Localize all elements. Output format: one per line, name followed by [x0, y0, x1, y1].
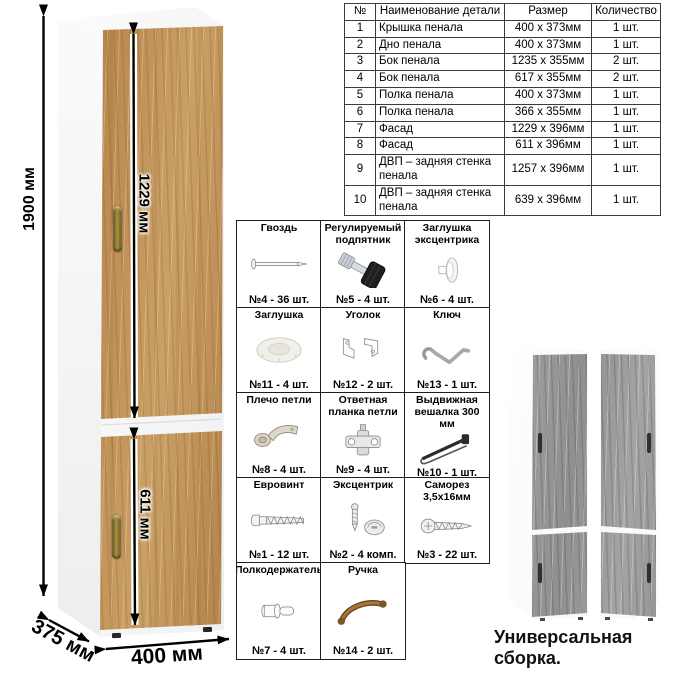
table-row: 10 ДВП – задняя стенка пенала 639 x 396м…: [345, 185, 661, 216]
preview-handle: [647, 433, 651, 453]
hardware-item-title: Гвоздь: [261, 223, 298, 235]
part-size: 1229 x 396мм: [505, 121, 592, 138]
preview-foot: [648, 618, 653, 621]
part-number: 7: [345, 121, 376, 138]
part-size: 400 x 373мм: [505, 20, 592, 37]
hardware-item-nail: Гвоздь №4 - 36 шт.: [236, 220, 321, 308]
hardware-item-shelf-pin: Полкодержатель №7 - 4 шт.: [236, 562, 321, 659]
upper-door-handle: [113, 206, 122, 252]
pullout-hanger-icon: [406, 431, 487, 467]
hinge-arm-icon: [238, 407, 319, 464]
hardware-grid: Гвоздь №4 - 36 шт. Регулируемый подпятни…: [237, 221, 489, 659]
part-number: 5: [345, 87, 376, 104]
col-header-number: №: [345, 4, 376, 21]
hardware-item-count: №4 - 36 шт.: [249, 294, 309, 306]
hardware-item-title: Ответная планка петли: [322, 395, 403, 419]
cam-cap-icon: [406, 247, 487, 294]
part-size: 400 x 373мм: [505, 37, 592, 54]
table-row: 5 Полка пенала 400 x 373мм 1 шт.: [345, 87, 661, 104]
hardware-item-count: №11 - 4 шт.: [249, 379, 309, 391]
hex-key-icon: [406, 322, 487, 379]
part-name: ДВП – задняя стенка пенала: [376, 185, 505, 216]
part-number: 9: [345, 155, 376, 186]
part-qty: 2 шт.: [592, 71, 661, 88]
hardware-item-count: №9 - 4 шт.: [336, 464, 390, 476]
hardware-item-title: Уголок: [346, 310, 381, 322]
part-size: 1257 x 396мм: [505, 155, 592, 186]
hardware-item-cam-lock: Эксцентрик №2 - 4 комп.: [320, 477, 405, 563]
hardware-item-handle: Ручка №14 - 2 шт.: [320, 562, 405, 659]
col-header-size: Размер: [505, 4, 592, 21]
part-size: 1235 x 355мм: [505, 54, 592, 71]
part-name: Полка пенала: [376, 87, 505, 104]
col-header-quantity: Количество: [592, 4, 661, 21]
part-qty: 2 шт.: [592, 54, 661, 71]
part-qty: 1 шт.: [592, 87, 661, 104]
part-qty: 1 шт.: [592, 104, 661, 121]
table-row: 1 Крышка пенала 400 x 373мм 1 шт.: [345, 20, 661, 37]
hardware-item-pullout-hanger: Выдвижная вешалка 300 мм №10 - 1 шт.: [404, 392, 489, 478]
hardware-item-count: №1 - 12 шт.: [249, 549, 309, 561]
hardware-item-hinge-plate: Ответная планка петли №9 - 4 шт.: [320, 392, 405, 478]
part-name: Крышка пенала: [376, 20, 505, 37]
confirmat-screw-icon: [238, 492, 319, 549]
hardware-item-count: №14 - 2 шт.: [333, 645, 393, 657]
lower-door-dimension-label: 611 мм: [137, 470, 154, 560]
part-qty: 1 шт.: [592, 121, 661, 138]
table-row: 2 Дно пенала 400 x 373мм 1 шт.: [345, 37, 661, 54]
hardware-item-adjustable-foot: Регулируемый подпятник №5 - 4 шт.: [320, 220, 405, 308]
hardware-item-title: Ручка: [348, 565, 378, 577]
cabinet-foot: [112, 633, 121, 638]
hardware-item-count: №13 - 1 шт.: [417, 379, 477, 391]
nail-icon: [238, 235, 319, 294]
hinge-plate-icon: [322, 419, 403, 464]
part-name: Фасад: [376, 121, 505, 138]
preview-cabinet-left-carcass: [490, 330, 700, 630]
part-qty: 1 шт.: [592, 37, 661, 54]
hardware-item-title: Заглушка: [255, 310, 304, 322]
preview-foot: [578, 617, 583, 620]
part-number: 1: [345, 20, 376, 37]
col-header-name: Наименование детали: [376, 4, 505, 21]
hardware-item-title: Выдвижная вешалка 300 мм: [406, 395, 487, 430]
part-qty: 1 шт.: [592, 20, 661, 37]
upper-door-dimension-label: 1229 мм: [136, 149, 153, 259]
hardware-item-title: Плечо петли: [246, 395, 311, 407]
table-row: 9 ДВП – задняя стенка пенала 1257 x 396м…: [345, 155, 661, 186]
part-size: 366 x 355мм: [505, 104, 592, 121]
shelf-pin-icon: [238, 577, 319, 645]
hardware-item-count: №5 - 4 шт.: [336, 294, 390, 306]
height-dimension-label: 1900 мм: [21, 139, 39, 259]
part-number: 6: [345, 104, 376, 121]
part-size: 400 x 373мм: [505, 87, 592, 104]
preview-handle: [538, 563, 542, 583]
self-tapping-screw-icon: [406, 504, 487, 549]
cam-lock-icon: [322, 492, 403, 549]
hardware-item-self-tapping-screw: Саморез 3,5х16мм №3 - 22 шт.: [404, 477, 489, 563]
corner-bracket-icon: [322, 322, 403, 379]
hardware-item-cap: Заглушка №11 - 4 шт.: [236, 307, 321, 393]
part-name: Бок пенала: [376, 54, 505, 71]
part-number: 2: [345, 37, 376, 54]
table-row: 4 Бок пенала 617 x 355мм 2 шт.: [345, 71, 661, 88]
part-size: 611 x 396мм: [505, 138, 592, 155]
handle-icon: [322, 577, 403, 645]
part-size: 617 x 355мм: [505, 71, 592, 88]
preview-handle: [647, 563, 651, 583]
part-name: Фасад: [376, 138, 505, 155]
hardware-item-title: Эксцентрик: [333, 480, 393, 492]
part-name: Бок пенала: [376, 71, 505, 88]
part-qty: 1 шт.: [592, 138, 661, 155]
hardware-item-title: Заглушка эксцентрика: [406, 223, 487, 247]
part-size: 639 x 396мм: [505, 185, 592, 216]
table-header-row: № Наименование детали Размер Количество: [345, 4, 661, 21]
part-name: ДВП – задняя стенка пенала: [376, 155, 505, 186]
part-name: Дно пенала: [376, 37, 505, 54]
hardware-item-hex-key: Ключ №13 - 1 шт.: [404, 307, 489, 393]
width-dimension-label: 400 мм: [111, 640, 222, 672]
hardware-item-count: №2 - 4 комп.: [329, 549, 396, 561]
hardware-item-title: Ключ: [433, 310, 461, 322]
table-row: 8 Фасад 611 x 396мм 1 шт.: [345, 138, 661, 155]
universal-assembly-caption: Универсальная сборка.: [494, 627, 700, 669]
hardware-item-count: №12 - 2 шт.: [333, 379, 393, 391]
part-number: 3: [345, 54, 376, 71]
hardware-item-count: №7 - 4 шт.: [252, 645, 306, 657]
part-qty: 1 шт.: [592, 185, 661, 216]
part-qty: 1 шт.: [592, 155, 661, 186]
hardware-item-title: Полкодержатель: [236, 565, 321, 577]
table-row: 3 Бок пенала 1235 x 355мм 2 шт.: [345, 54, 661, 71]
hardware-item-count: №3 - 22 шт.: [417, 549, 477, 561]
part-number: 10: [345, 185, 376, 216]
cabinet-foot: [203, 627, 212, 632]
part-number: 4: [345, 71, 376, 88]
part-number: 8: [345, 138, 376, 155]
cabinet-drawing: 1900 мм 1229 мм 611 мм 400 мм 375 мм: [0, 0, 250, 683]
hardware-item-hinge-arm: Плечо петли №8 - 4 шт.: [236, 392, 321, 478]
hardware-item-confirmat-screw: Евровинт №1 - 12 шт.: [236, 477, 321, 563]
hardware-item-title: Саморез 3,5х16мм: [406, 480, 487, 504]
table-row: 6 Полка пенала 366 x 355мм 1 шт.: [345, 104, 661, 121]
adjustable-foot-icon: [322, 247, 403, 294]
preview-handle: [538, 433, 542, 453]
cap-icon: [238, 322, 319, 379]
table-row: 7 Фасад 1229 x 396мм 1 шт.: [345, 121, 661, 138]
lower-door-handle: [112, 515, 121, 559]
hardware-item-title: Регулируемый подпятник: [322, 223, 403, 247]
assembly-sheet: 1900 мм 1229 мм 611 мм 400 мм 375 мм № Н…: [0, 0, 700, 683]
preview-foot: [605, 617, 610, 620]
hardware-item-cam-cap: Заглушка эксцентрика №6 - 4 шт.: [404, 220, 489, 308]
part-name: Полка пенала: [376, 104, 505, 121]
hardware-item-corner-bracket: Уголок №12 - 2 шт.: [320, 307, 405, 393]
hardware-item-title: Евровинт: [254, 480, 305, 492]
hardware-item-count: №8 - 4 шт.: [252, 464, 306, 476]
parts-table: № Наименование детали Размер Количество …: [344, 3, 661, 216]
preview-foot: [540, 618, 545, 621]
hardware-item-count: №6 - 4 шт.: [420, 294, 474, 306]
universal-assembly-preview: [490, 330, 700, 630]
